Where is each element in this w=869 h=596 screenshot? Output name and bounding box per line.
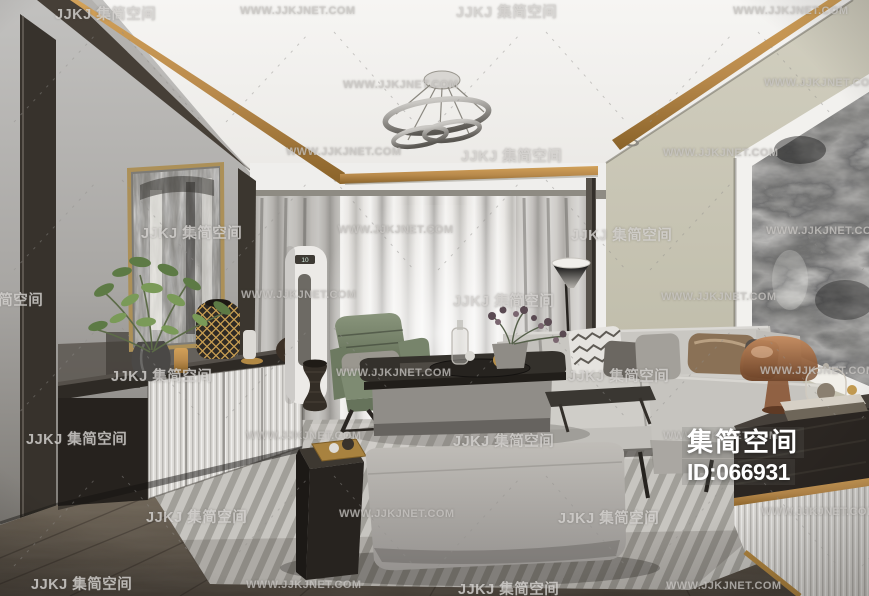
watermark-dash-lines — [0, 0, 869, 596]
brand-label: 集简空间 ID:066931 — [682, 427, 804, 485]
brand-name: 集简空间 — [682, 427, 804, 458]
brand-id: ID:066931 — [682, 459, 795, 485]
interior-render-photo: 10 — [0, 0, 869, 596]
living-room-scene: 10 — [0, 0, 869, 596]
